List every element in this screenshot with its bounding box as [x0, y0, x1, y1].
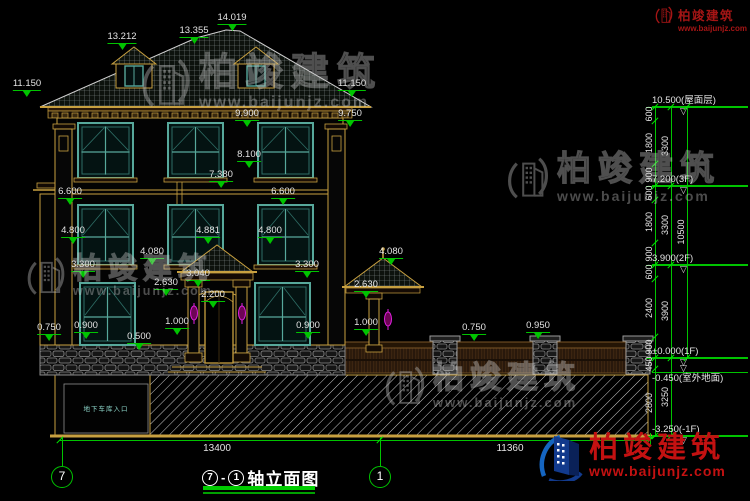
chain-dim-label: 900 [644, 339, 654, 354]
elevation-dim-label: 14.019 [217, 12, 246, 35]
elevation-dim-label: 8.100 [237, 149, 261, 172]
dimension-line [62, 437, 63, 466]
watermark-brand: 柏竣建筑 [433, 362, 581, 395]
watermark: 柏竣建筑 www.baijunjz.com [382, 362, 581, 410]
watermark-logo-icon [504, 154, 552, 202]
brand-logo-icon [654, 5, 674, 25]
brand-name: 柏竣建筑 [678, 5, 747, 24]
elevation-dim-label: 4.881 [196, 225, 220, 248]
chain-dim-label: 10500 [676, 219, 686, 244]
elevation-dim-label: 1.000 [165, 316, 189, 339]
watermark: 柏竣建筑 www.baijunjz.com [504, 152, 721, 204]
level-marker: 10.500(屋面层)▽ [652, 95, 748, 115]
title-axis-to: 1 [228, 470, 244, 486]
elevation-dim-label: 11.150 [13, 78, 41, 101]
brand-url: www.baijunjz.com [678, 24, 747, 33]
watermark-brand: 柏竣建筑 [557, 152, 721, 188]
elevation-dim-label: 7.380 [209, 169, 233, 192]
title-underline [203, 486, 315, 490]
axis-bubble-7: 7 [51, 466, 73, 488]
elevation-dim-label: 13.355 [179, 25, 208, 48]
elevation-dim-label: 0.750 [462, 322, 486, 345]
watermark-url: www.baijunjz.com [199, 94, 383, 112]
watermark-url: www.baijunjz.com [557, 188, 721, 204]
watermark-logo-icon [382, 363, 428, 409]
cad-elevation-canvas: 14.01913.35513.21211.15011.1509.9009.750… [0, 0, 750, 501]
elevation-dim-label: 0.500 [127, 331, 151, 354]
title-underline-2 [203, 492, 315, 494]
elevation-dim-label: 1.000 [354, 317, 378, 340]
title-separator: - [221, 470, 225, 485]
header-brand-logo: 柏竣建筑 www.baijunjz.com [654, 5, 747, 33]
watermark: 柏竣建筑 www.baijunjz.com [24, 254, 213, 298]
level-marker: ▽-0.450(室外地面) [652, 364, 748, 384]
chain-dim-label: 1800 [644, 212, 654, 232]
title-axis-from: 7 [202, 470, 218, 486]
watermark-url: www.baijunjz.com [73, 284, 213, 298]
watermark-brand: 柏竣建筑 [199, 54, 383, 94]
elevation-dim-label: 3.300 [295, 259, 319, 282]
axis-bubble-1: 1 [369, 466, 391, 488]
brand-name: 柏竣建筑 [589, 434, 726, 463]
elevation-dim-label: 0.900 [74, 320, 98, 343]
chain-dim-label: 900 [644, 246, 654, 261]
elevation-dim-label: 0.900 [296, 320, 320, 343]
elevation-dim-label: 0.950 [526, 320, 550, 343]
chain-dim-label: 3900 [660, 301, 670, 321]
window [74, 123, 137, 182]
elevation-dim-label: 6.600 [58, 186, 82, 209]
elevation-dim-label: 4.800 [258, 225, 282, 248]
elevation-dim-label: 4.800 [61, 225, 85, 248]
level-marker: ±0.000(1F)▽ [652, 346, 748, 366]
chain-dim-label: 2400 [644, 298, 654, 318]
overall-dim-right: 11360 [496, 443, 523, 454]
window [254, 123, 317, 182]
brand-logo-icon [537, 431, 583, 481]
elevation-dim-label: 6.600 [271, 186, 295, 209]
watermark: 柏竣建筑 www.baijunjz.com [138, 54, 383, 112]
brand-url: www.baijunjz.com [589, 463, 726, 479]
chain-dim-label: 3300 [660, 215, 670, 235]
elevation-dim-label: 0.750 [37, 322, 61, 345]
elevation-dim-label: 4.080 [379, 246, 403, 269]
level-marker: 3.900(2F)▽ [652, 253, 748, 273]
watermark-logo-icon [138, 55, 194, 111]
elevation-dim-label: 2.630 [354, 279, 378, 302]
footer-brand-logo: 柏竣建筑 www.baijunjz.com [537, 431, 726, 481]
dimension-line [687, 107, 688, 358]
corner-pilaster-right [325, 124, 347, 345]
dimension-line [380, 437, 381, 466]
watermark-brand: 柏竣建筑 [73, 254, 213, 284]
elevation-dim-label: 13.212 [107, 31, 136, 54]
overall-dim-left: 13400 [203, 443, 231, 454]
chain-dim-label: 2800 [644, 393, 654, 413]
chain-dim-label: 3250 [660, 387, 670, 407]
basement-entrance-label: 地下车库入口 [64, 403, 148, 413]
watermark-logo-icon [24, 254, 68, 298]
watermark-url: www.baijunjz.com [433, 395, 581, 410]
